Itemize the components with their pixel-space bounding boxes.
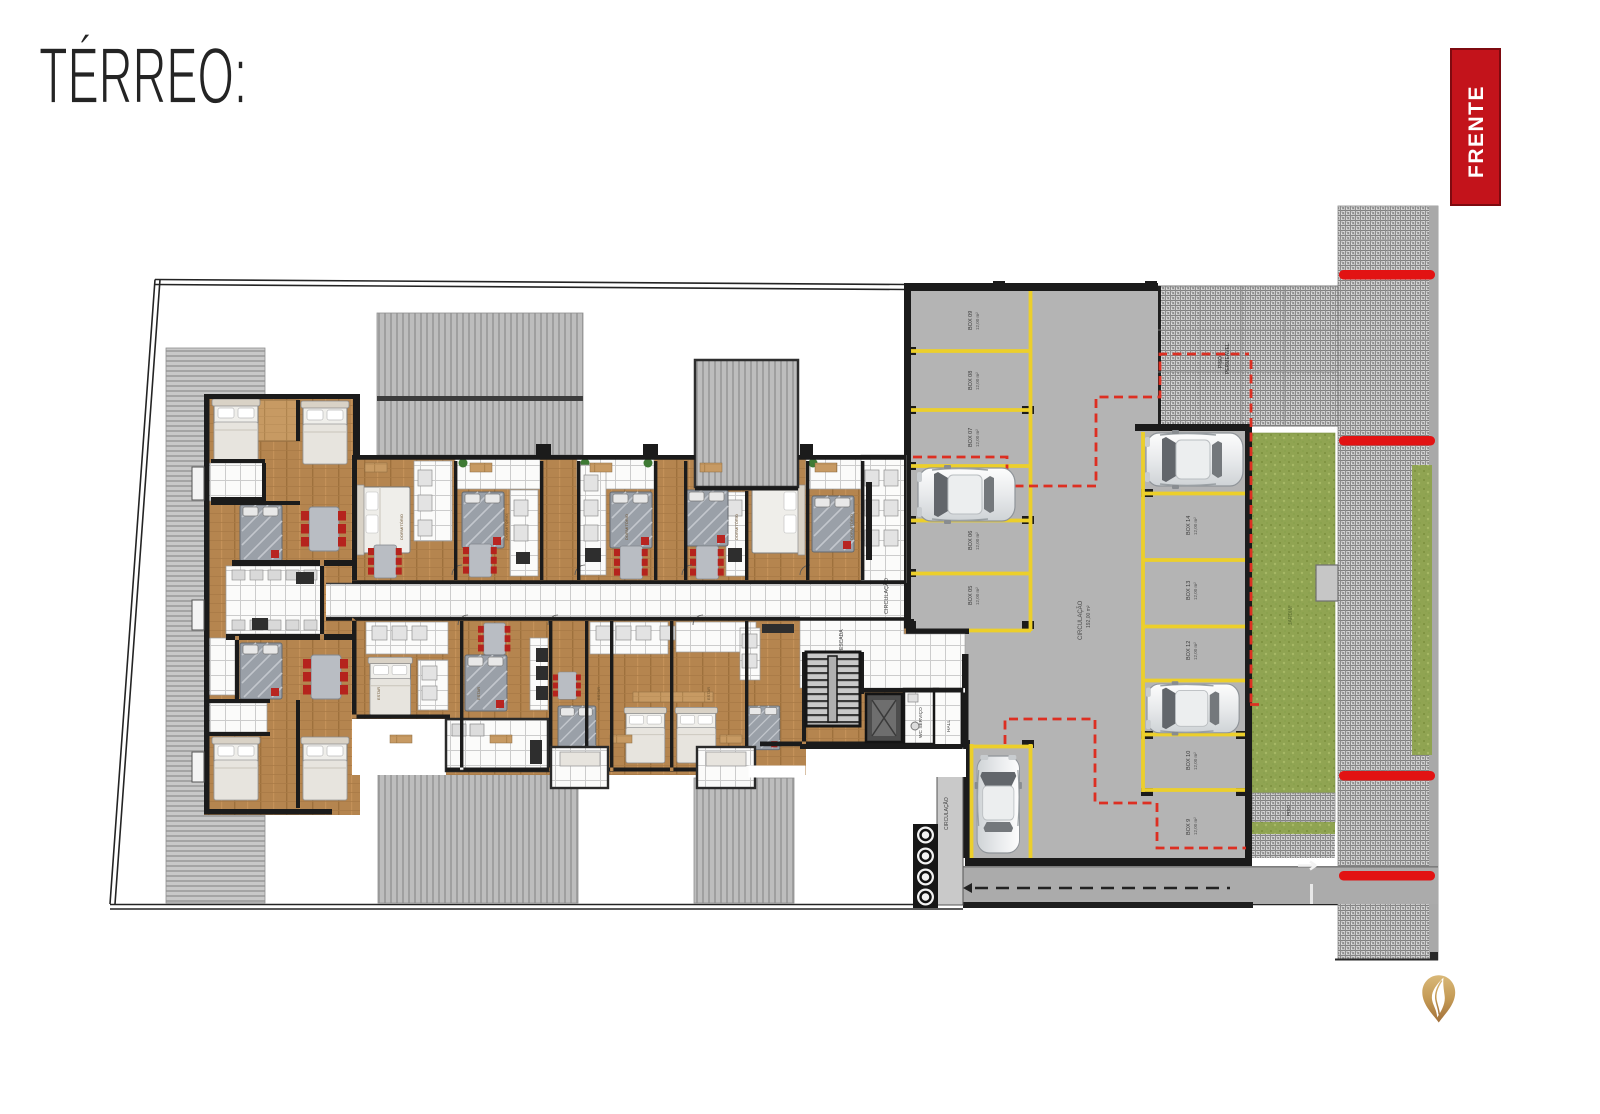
svg-text:DORMITÓRIO: DORMITÓRIO bbox=[624, 514, 629, 540]
svg-text:12,00 m²: 12,00 m² bbox=[1193, 582, 1198, 600]
svg-text:BOX 13: BOX 13 bbox=[1186, 581, 1192, 600]
svg-text:12,00 m²: 12,00 m² bbox=[975, 587, 980, 605]
svg-text:12,00 m²: 12,00 m² bbox=[1193, 817, 1198, 835]
svg-text:ESTAR: ESTAR bbox=[596, 687, 601, 700]
svg-text:TÉRREO:: TÉRREO: bbox=[39, 31, 247, 120]
svg-text:PISO: PISO bbox=[1218, 356, 1224, 368]
svg-text:PISO: PISO bbox=[1286, 805, 1291, 816]
svg-text:BOX 07: BOX 07 bbox=[968, 428, 974, 447]
svg-text:12,00 m²: 12,00 m² bbox=[1193, 752, 1198, 770]
svg-text:WC SERVIÇO: WC SERVIÇO bbox=[918, 707, 924, 738]
svg-text:192,00 m²: 192,00 m² bbox=[1086, 605, 1092, 628]
svg-text:12,00 m²: 12,00 m² bbox=[1193, 517, 1198, 535]
svg-text:DORMITÓRIO: DORMITÓRIO bbox=[734, 514, 739, 540]
svg-text:12,00 m²: 12,00 m² bbox=[975, 429, 980, 447]
svg-text:BOX 10: BOX 10 bbox=[1186, 751, 1192, 770]
svg-text:DORMITÓRIO: DORMITÓRIO bbox=[849, 514, 854, 540]
svg-text:BOX 08: BOX 08 bbox=[968, 371, 974, 390]
svg-text:JARDIM: JARDIM bbox=[1288, 606, 1294, 625]
svg-text:HALL: HALL bbox=[946, 720, 952, 732]
svg-text:12,00 m²: 12,00 m² bbox=[975, 312, 980, 330]
svg-text:12,00 m²: 12,00 m² bbox=[975, 532, 980, 550]
svg-text:ESTAR: ESTAR bbox=[476, 687, 481, 700]
svg-text:BOX 06: BOX 06 bbox=[968, 531, 974, 550]
svg-text:PERMEÁVEL: PERMEÁVEL bbox=[1224, 343, 1231, 374]
svg-text:ESCADA: ESCADA bbox=[839, 629, 845, 650]
svg-text:BOX 12: BOX 12 bbox=[1186, 641, 1192, 660]
svg-text:BOX 09: BOX 09 bbox=[968, 311, 974, 330]
svg-text:CIRCULAÇÃO: CIRCULAÇÃO bbox=[943, 797, 950, 830]
svg-text:ESTAR: ESTAR bbox=[706, 687, 711, 700]
svg-text:BOX 05: BOX 05 bbox=[968, 586, 974, 605]
svg-text:FRENTE: FRENTE bbox=[1465, 85, 1488, 178]
svg-text:ESTAR: ESTAR bbox=[376, 687, 381, 700]
svg-text:CIRCULAÇÃO: CIRCULAÇÃO bbox=[1077, 600, 1084, 640]
svg-text:12,00 m²: 12,00 m² bbox=[975, 372, 980, 390]
svg-text:12,00 m²: 12,00 m² bbox=[1193, 642, 1198, 660]
svg-text:DORMITÓRIO: DORMITÓRIO bbox=[399, 514, 404, 540]
svg-text:BOX 14: BOX 14 bbox=[1186, 516, 1192, 535]
svg-text:BOX 9: BOX 9 bbox=[1186, 819, 1192, 835]
svg-text:DORMITÓRIO: DORMITÓRIO bbox=[504, 514, 509, 540]
